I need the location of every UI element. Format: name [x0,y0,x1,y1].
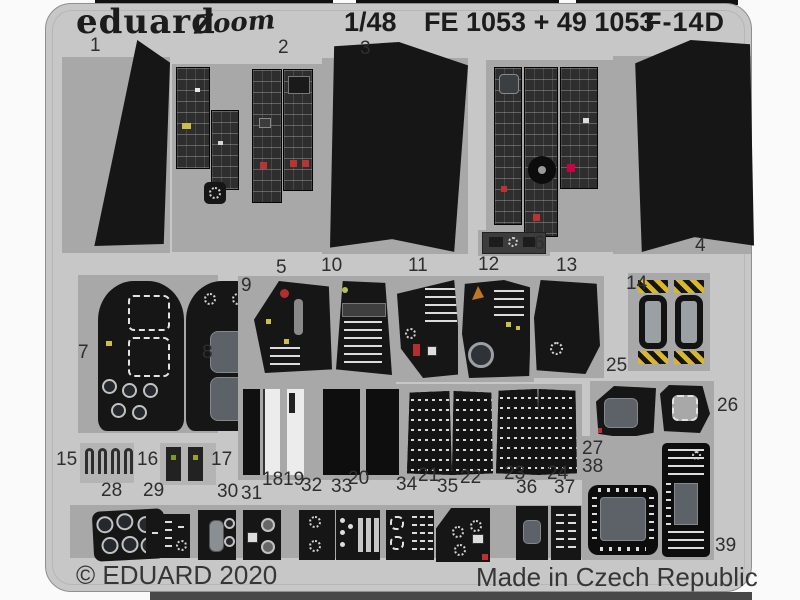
part-number-label-30: 30 [217,482,238,501]
part-15-wire-handle [98,448,107,474]
part-number-label-17: 17 [211,450,232,469]
part-22-louvre-panel [452,391,493,475]
display-screen [674,483,698,525]
part-number-label-28: 28 [101,481,122,500]
part-34-small-panel [386,510,434,560]
part-number-label-29: 29 [143,481,164,500]
photo-bottom-edge [150,592,752,600]
part-15-wire-handle [124,448,133,474]
part-number-label-18: 18 [262,470,283,489]
part-number-label-38: 38 [582,457,603,476]
part-number-label-1: 1 [90,36,101,55]
part-15-wire-handle [85,448,94,474]
part-20-strip [366,389,399,475]
part-21-louvre-panel [407,391,452,475]
product-codes: FE 1053 + 49 1053 [424,7,654,38]
part-16-lever [166,447,181,481]
part-number-label-37: 37 [554,478,575,497]
mfd-screen [600,497,646,541]
part-36-small-panel [516,506,548,560]
part-2-console-panel [252,69,282,203]
made-in-text: Made in Czech Republic [476,562,758,593]
right-console-panel [494,67,522,225]
part-7-main-instrument-panel [98,281,184,431]
part-number-label-8: 8 [202,343,213,362]
part-number-label-16: 16 [137,450,158,469]
right-console-panel [560,67,598,189]
part-12-side-panel [462,280,532,378]
part-number-label-39: 39 [715,536,736,555]
part-17-strip [243,389,260,475]
part-number-label-12: 12 [478,255,499,274]
display-screen [523,520,541,544]
part-number-label-10: 10 [321,256,342,275]
handle-loop [675,295,703,349]
part-32-small-panel [299,510,335,560]
warning-stripe [674,351,704,364]
scale-label: 1/48 [344,7,397,38]
handle-loop [639,295,667,349]
part-number-label-21: 21 [418,466,439,485]
part-2-small-console [204,182,226,204]
part-16-lever [188,447,203,481]
part-4-side-console-blank [622,40,754,252]
warning-stripe [638,351,668,364]
part-33-small-panel [336,510,380,560]
part-37-small-panel [551,506,581,560]
part-29-small-panel [146,514,190,558]
zoom-series-logo: Zoom [193,5,276,41]
part-number-label-33: 33 [331,477,352,496]
part-number-label-35: 35 [437,477,458,496]
product-photo: eduard Zoom 1/48 FE 1053 + 49 1053 F-14D [0,0,800,600]
part-18-strip [263,389,280,475]
part-10-knee-panel [336,281,392,375]
part-3-side-console-blank [330,42,468,254]
part-number-label-31: 31 [241,484,262,503]
part-number-label-15: 15 [56,450,77,469]
part-number-label-22: 22 [460,468,481,487]
display-screen [604,398,638,428]
part-31-small-panel [243,510,281,560]
part-30-small-panel [198,510,236,560]
panel-cutout [672,395,698,421]
part-2-console-panel [176,67,210,169]
part-number-label-36: 36 [516,478,537,497]
right-console-panel [524,67,558,237]
part-number-label-26: 26 [717,396,738,415]
part-39-display-unit-panel [662,443,710,557]
part-number-label-7: 7 [78,343,89,362]
part-number-label-25: 25 [606,356,627,375]
mfd-bezel-panel [588,485,658,555]
part-number-label-11: 11 [408,256,428,275]
part-number-label-13: 13 [556,256,577,275]
part-number-label-3: 3 [360,39,371,58]
part-19-strip [287,389,304,475]
part-2-console-panel [211,110,239,190]
part-number-label-34: 34 [396,475,417,494]
part-15-wire-handle [111,448,120,474]
part-14-ejection-handle [674,280,704,364]
part-number-label-5: 5 [276,258,287,277]
part-2-console-panel [283,69,313,191]
part-20-strip [323,389,360,475]
part-13-side-panel [534,280,600,374]
copyright-text: © EDUARD 2020 [76,560,277,591]
aircraft-name: F-14D [645,7,725,38]
part-number-label-32: 32 [301,476,322,495]
part-number-label-14: 14 [626,274,647,293]
part-number-label-4: 4 [695,236,706,255]
warning-stripe [674,280,704,293]
part-number-label-9: 9 [241,276,252,295]
part-number-label-6: 6 [534,234,545,253]
part-number-label-2: 2 [278,38,289,57]
part-26-panel-frame [660,385,710,433]
